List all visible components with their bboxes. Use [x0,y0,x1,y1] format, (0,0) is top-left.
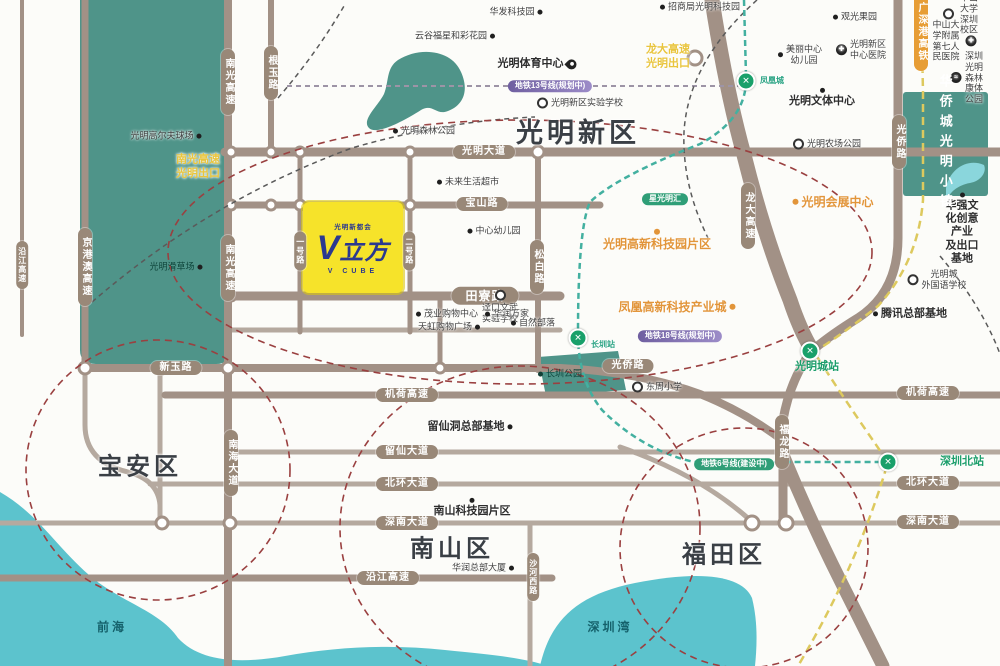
poi-sysu-campus-text: 中山大学深圳校区 [957,0,981,36]
poi-huarun-hq: 华润总部大厦 [452,563,514,574]
district-nanshan-text: 南山区 [410,536,494,565]
pill-guangqiao-rd-v: 光侨路 [892,115,906,169]
water-qianhai: 前海 [97,620,127,634]
poi-gm-forest-park: 光明森林公园 [393,126,455,137]
poi-sysu-hospital: 中山大学附属 第七人民医院✚ [930,19,977,62]
poi-gmc-foreign-school: 光明城 外国语学校 [907,269,966,291]
pill-genyu-rd-text: 根玉路 [265,55,277,91]
poi-gm-hightech-zone-text: 光明高新科技园片区 [603,237,711,251]
station-guangmingcheng-metro-station-icon: ✕ [801,342,820,361]
poi-meili-kindergarten-text: 美丽中心 幼儿园 [786,44,822,66]
pill-shennan-ave-right-text: 深南大道 [906,516,950,528]
district-nanshan: 南山区 [410,536,494,565]
poi-changzhen-park: 长圳公园 [538,369,582,380]
poi-dot-icon [538,371,543,376]
station-guangmingcheng-label: 光明城站 [795,360,839,373]
poi-gm-experimental-school: 光明新区实验学校 [537,98,623,109]
poi-gm-hospital: ✚光明新区 中心医院 [836,39,886,61]
district-futian: 福田区 [682,542,766,571]
pill-nanhai-ave: 南海大道 [224,430,238,496]
location-map: 光明新都会 V 立方 V CUBE 光明新区宝安区南山区福田区光明大道宝山路田寮… [0,0,1000,666]
pill-no1-rd: 一号路 [294,232,306,271]
poi-huarun-wanjia: 华润万家 [485,309,529,320]
water-shenzhen-bay: 深圳湾 [587,620,632,634]
pill-yanjiang-expwy-v: 沿江高速 [16,241,28,289]
poi-gm-grass-ski-text: 光明滑草场 [149,262,194,273]
poi-yungu-garden: 云谷福星和彩花园 [415,31,495,42]
poi-orange-dot-icon [654,229,660,235]
poi-jingkou-school: 迳口文武 实验学校 [482,290,518,325]
pill-beihuan-ave-left-text: 北环大道 [385,478,429,490]
pill-songbai-rd-text: 松白路 [531,249,543,285]
exit-nanguang-text: 南光高速 光明出口 [176,153,220,181]
pill-longda-expwy: 龙大高速 [741,183,755,249]
poi-gm-farm-park: 光明农场公园 [793,139,861,150]
station-shenzhenbei-label: 深圳北站 [940,455,984,468]
poi-dot-icon [470,498,475,503]
school-circle-icon [793,139,804,150]
exit-longda: 龙大高速 光明出口 [646,43,690,71]
pill-liuxian-ave-text: 留仙大道 [385,446,429,458]
poi-gm-grass-ski: 光明滑草场 [149,262,202,273]
metro-line6-pill-text: 地铁6号线(建设中) [701,459,767,469]
station-changzhen-label: 长圳站 [591,340,615,350]
station-shenzhenbei-metro-station-icon: ✕ [879,453,898,472]
poi-sysu-campus: 中山大学深圳校区 [943,0,981,36]
pill-baoshan-rd-text: 宝山路 [466,198,499,210]
pill-jihe-expwy-right: 机荷高速 [897,386,959,400]
poi-future-life-market-text: 未来生活超市 [445,177,499,188]
poi-gm-culture-center: 光明文体中心 [789,88,855,108]
poi-forest-wellness-park: ≈深圳光明 森林康体公园 [951,51,984,105]
poi-tencent-hq: 腾讯总部基地 [873,307,947,320]
poi-gm-experimental-school-text: 光明新区实验学校 [551,98,623,109]
pill-nanguang-expwy-mid: 南光高速 [221,235,235,301]
station-fenghuangcheng-label: 凤凰城 [760,76,784,86]
pill-shennan-ave-left-text: 深南大道 [385,517,429,529]
poi-dot-icon [467,228,472,233]
pill-yanjiang-expwy-h-text: 沿江高速 [366,572,410,584]
poi-orange-dot-icon [792,199,798,205]
pill-nanguang-expwy-top: 南光高速 [221,49,235,115]
poi-dot-icon [437,179,442,184]
poi-changzhen-park-text: 长圳公园 [546,369,582,380]
poi-huafa-tech-park-text: 华发科技园 [489,7,534,18]
poi-dot-icon [538,9,543,14]
badge-xingguangming-text: 星光明汇 [649,194,681,204]
poi-guanguang-orchard: 观光果园 [833,12,877,23]
pill-fulong-rd-text: 福龙路 [776,424,788,460]
poi-tianhong-plaza: 天虹购物广场 [418,322,480,333]
poi-gm-golf-course: 光明高尔夫球场 [130,131,201,142]
park-circle-icon: ≈ [951,72,962,83]
poi-guangming-sports-center-text: 光明体育中心 [498,57,564,70]
location-pin-icon [564,57,578,71]
poi-gm-farm-park-text: 光明农场公园 [807,139,861,150]
poi-gm-exhibition-center-text: 光明会展中心 [801,195,873,209]
pill-no2-rd: 二号路 [403,232,415,271]
poi-dongzhou-school: 东周小学 [632,382,682,393]
poi-huarun-hq-text: 华润总部大厦 [452,563,506,574]
pill-xinyu-rd-text: 新玉路 [160,362,193,374]
pill-jinggangao-expwy-text: 京港澳高速 [79,237,91,297]
pill-guangming-dadao: 光明大道 [453,145,515,159]
pill-guangming-dadao-text: 光明大道 [462,146,506,158]
pill-liuxian-ave: 留仙大道 [376,445,438,459]
poi-gm-hospital-text: 光明新区 中心医院 [850,39,886,61]
pill-guangqiao-rd-h: 光侨路 [603,359,654,373]
poi-meili-kindergarten: 美丽中心 幼儿园 [778,44,822,66]
pill-gsg-rail: 广深港高铁 [914,0,928,71]
station-fenghuangcheng-metro-station-icon: ✕ [737,72,756,91]
poi-huafa-tech-park: 华发科技园 [489,7,542,18]
school-circle-icon [494,290,505,301]
district-guangming-text: 光明新区 [516,117,640,149]
pill-gsg-rail-text: 广深港高铁 [915,2,927,62]
pill-jihe-expwy-left: 机荷高速 [376,388,438,402]
poi-dot-icon [509,565,514,570]
school-circle-icon [943,9,954,20]
poi-gm-golf-course-text: 光明高尔夫球场 [130,131,193,142]
poi-dot-icon [833,14,838,19]
poi-gm-hightech-zone: 光明高新科技园片区 [603,229,711,251]
hospital-cross-icon: ✚ [836,45,847,56]
district-futian-text: 福田区 [682,542,766,571]
pill-guangqiao-rd-h-text: 光侨路 [612,360,645,372]
pill-tianliao-rd-text: 田寮路 [465,289,504,303]
hospital-cross-icon: ✚ [966,36,977,47]
poi-tianhong-plaza-text: 天虹购物广场 [418,322,472,333]
pill-nanguang-expwy-top-text: 南光高速 [222,58,234,106]
metro-line13-pill: 地铁13号线(规划中) [508,80,592,92]
water-shenzhen-bay-text: 深圳湾 [587,620,632,634]
poi-dot-icon [508,425,513,430]
exit-nanguang: 南光高速 光明出口 [176,153,220,181]
area-oct-town-text: 华侨城光明小镇 [937,74,953,214]
pill-baoshan-rd: 宝山路 [457,197,508,211]
poi-maoye-mall: 茂业购物中心 [416,309,478,320]
station-changzhen-metro-station-icon: ✕ [569,329,588,348]
district-guangming: 光明新区 [516,117,640,149]
poi-dot-icon [416,311,421,316]
poi-jingkou-school-text: 迳口文武 实验学校 [482,303,518,325]
poi-zhaoshangju-tech-text: 招商局光明科技园 [668,2,740,13]
poi-tencent-hq-text: 腾讯总部基地 [881,307,947,320]
poi-dot-icon [485,311,490,316]
pill-beihuan-ave-right-text: 北环大道 [906,477,950,489]
water-qianhai-text: 前海 [97,620,127,634]
pill-no1-rd-text: 一号路 [295,238,305,265]
pill-nanguang-expwy-mid-text: 南光高速 [222,244,234,292]
pill-shennan-ave-right: 深南大道 [897,515,959,529]
metro-line6-pill: 地铁6号线(建设中) [694,458,774,470]
poi-phoenix-tech-city: 凤凰高新科技产业城 [618,300,735,314]
metro-line13-pill-text: 地铁13号线(规划中) [515,81,585,91]
area-oct-town: 华侨城光明小镇 [937,74,953,214]
poi-nature-tribe: 自然部落 [511,318,555,329]
poi-dot-icon [197,133,202,138]
poi-huaqiang-base: 华强文化创意产业 及出口基地 [943,193,981,266]
poi-sysu-hospital-text: 中山大学附属 第七人民医院 [930,19,963,62]
exit-longda-text: 龙大高速 光明出口 [646,43,690,71]
pill-jinggangao-expwy: 京港澳高速 [78,228,92,306]
pill-tianliao-rd: 田寮路 [451,287,518,305]
metro-line18-pill: 地铁18号线(规划中) [638,330,722,342]
poi-nanshan-tech-park: 南山科技园片区 [434,498,511,518]
pill-shennan-ave-left: 深南大道 [376,516,438,530]
poi-forest-wellness-park-text: 深圳光明 森林康体公园 [965,51,984,105]
poi-dot-icon [490,33,495,38]
poi-liuxiandong-base-text: 留仙洞总部基地 [428,420,505,433]
pill-jihe-expwy-left-text: 机荷高速 [385,389,429,401]
poi-center-kindergarten-text: 中心幼儿园 [475,226,520,237]
pill-beihuan-ave-right: 北环大道 [897,476,959,490]
school-circle-icon [537,98,548,109]
pill-shahexi-rd-text: 沙河西路 [528,559,538,595]
school-circle-icon [632,382,643,393]
poi-dot-icon [873,312,878,317]
pill-no2-rd-text: 二号路 [404,238,414,265]
poi-future-life-market: 未来生活超市 [437,177,499,188]
poi-orange-dot-icon [730,304,736,310]
pill-songbai-rd: 松白路 [530,240,544,294]
poi-guangming-sports-center: 光明体育中心 [498,57,577,70]
poi-dot-icon [960,193,965,198]
pill-jihe-expwy-right-text: 机荷高速 [906,387,950,399]
poi-dot-icon [475,324,480,329]
pill-guangqiao-rd-v-text: 光侨路 [893,124,905,160]
pill-xinyu-rd: 新玉路 [151,361,202,375]
poi-dongzhou-school-text: 东周小学 [646,382,682,393]
pill-genyu-rd: 根玉路 [264,46,278,100]
map-labels-layer: 光明新区宝安区南山区福田区光明大道宝山路田寮路新玉路光侨路机荷高速机荷高速留仙大… [0,0,1000,666]
poi-gmc-foreign-school-text: 光明城 外国语学校 [921,269,966,291]
poi-yungu-garden-text: 云谷福星和彩花园 [415,31,487,42]
poi-liuxiandong-base: 留仙洞总部基地 [428,420,513,433]
district-baoan-text: 宝安区 [98,454,182,483]
pill-yanjiang-expwy-h: 沿江高速 [357,571,419,585]
metro-line18-pill-text: 地铁18号线(规划中) [645,331,715,341]
poi-dot-icon [198,264,203,269]
poi-huaqiang-base-text: 华强文化创意产业 及出口基地 [943,200,981,266]
poi-dot-icon [511,320,516,325]
poi-gm-exhibition-center: 光明会展中心 [792,195,873,209]
pill-longda-expwy-text: 龙大高速 [742,192,754,240]
poi-phoenix-tech-city-text: 凤凰高新科技产业城 [618,300,726,314]
pill-beihuan-ave-left: 北环大道 [376,477,438,491]
district-baoan: 宝安区 [98,454,182,483]
poi-dot-icon [820,88,825,93]
badge-xingguangming: 星光明汇 [642,193,688,205]
pill-fulong-rd: 福龙路 [775,415,789,469]
pill-nanhai-ave-text: 南海大道 [225,439,237,487]
poi-zhaoshangju-tech: 招商局光明科技园 [660,2,740,13]
poi-dot-icon [660,4,665,9]
poi-guanguang-orchard-text: 观光果园 [841,12,877,23]
poi-gm-culture-center-text: 光明文体中心 [789,95,855,108]
poi-huarun-wanjia-text: 华润万家 [493,309,529,320]
poi-dot-icon [393,128,398,133]
poi-dot-icon [778,53,783,58]
poi-nanshan-tech-park-text: 南山科技园片区 [434,505,511,518]
poi-nature-tribe-text: 自然部落 [519,318,555,329]
pill-yanjiang-expwy-v-text: 沿江高速 [17,247,27,283]
pill-shahexi-rd: 沙河西路 [527,553,539,601]
poi-center-kindergarten: 中心幼儿园 [467,226,520,237]
poi-maoye-mall-text: 茂业购物中心 [424,309,478,320]
poi-gm-forest-park-text: 光明森林公园 [401,126,455,137]
school-circle-icon [907,275,918,286]
